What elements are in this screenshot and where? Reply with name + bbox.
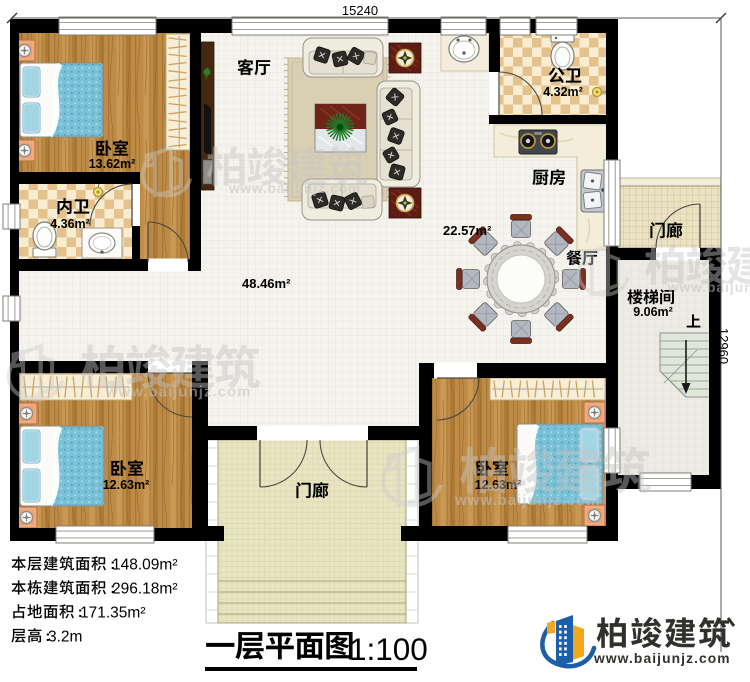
svg-text:www.baijunjz.com: www.baijunjz.com (105, 384, 252, 401)
svg-text:4.32m²: 4.32m² (543, 85, 583, 99)
svg-text:148.09m²: 148.09m² (112, 557, 177, 574)
svg-text:15240: 15240 (342, 3, 378, 18)
svg-text:1:100: 1:100 (349, 631, 428, 667)
svg-text:www.baijunjz.com: www.baijunjz.com (667, 280, 750, 295)
svg-text:4.36m²: 4.36m² (50, 217, 90, 231)
svg-text:9.06m²: 9.06m² (633, 305, 673, 319)
svg-text:296.18m²: 296.18m² (112, 581, 177, 598)
svg-text:12960: 12960 (716, 328, 731, 364)
svg-text:48.46m²: 48.46m² (242, 276, 291, 291)
svg-text:13.62m²: 13.62m² (89, 157, 136, 171)
svg-text:171.35m²: 171.35m² (80, 605, 145, 622)
svg-text:www.baijunjz.com: www.baijunjz.com (593, 651, 731, 666)
svg-text:22.57m²: 22.57m² (443, 223, 492, 238)
svg-text:www.baijunjz.com: www.baijunjz.com (454, 492, 600, 509)
svg-text:12.63m²: 12.63m² (103, 478, 150, 492)
svg-text:www.baijunjz.com: www.baijunjz.com (228, 181, 361, 196)
svg-text:3.2m: 3.2m (48, 629, 82, 646)
